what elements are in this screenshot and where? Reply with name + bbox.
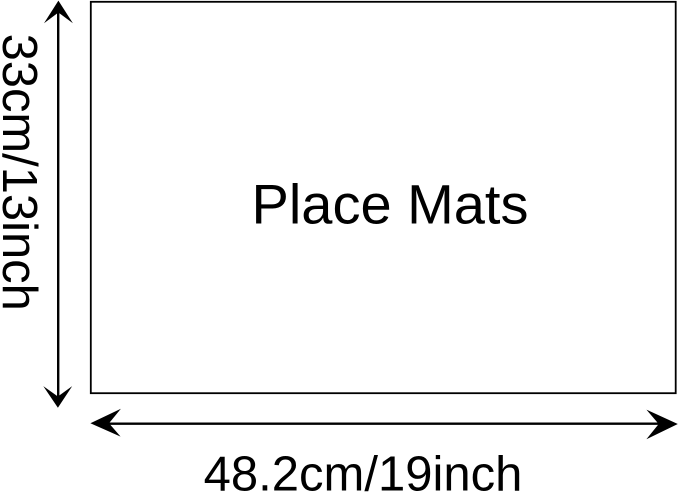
svg-text:48.2cm/19inch: 48.2cm/19inch: [204, 448, 523, 494]
svg-text:33cm/13inch: 33cm/13inch: [0, 34, 46, 311]
svg-text:Place Mats: Place Mats: [252, 173, 529, 236]
